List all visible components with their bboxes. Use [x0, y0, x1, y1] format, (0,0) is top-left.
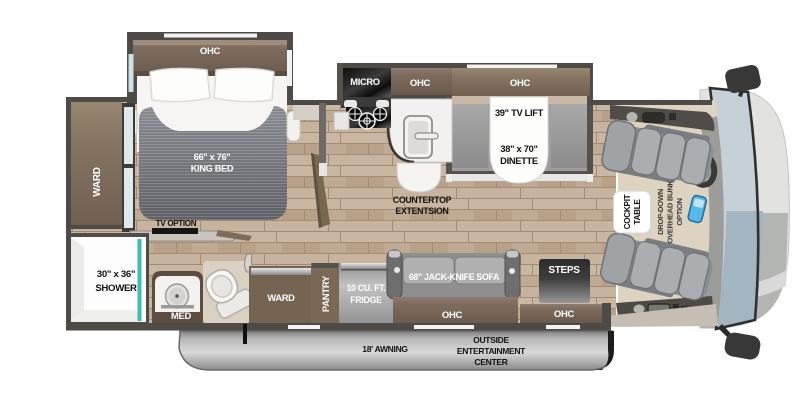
svg-text:30" x 36": 30" x 36" — [97, 269, 135, 280]
svg-text:PANTRY: PANTRY — [321, 275, 332, 312]
svg-text:KING BED: KING BED — [191, 164, 234, 174]
svg-text:MED: MED — [171, 311, 192, 322]
svg-text:TV OPTION: TV OPTION — [156, 219, 197, 228]
svg-text:OHC: OHC — [200, 46, 221, 57]
svg-text:OHC: OHC — [410, 78, 431, 89]
svg-text:18' AWNING: 18' AWNING — [362, 344, 408, 354]
svg-text:DROP-DOWN: DROP-DOWN — [656, 189, 665, 235]
svg-text:38" x 70": 38" x 70" — [500, 144, 537, 154]
svg-text:10 CU. FT.: 10 CU. FT. — [346, 283, 385, 293]
svg-text:EXTENTSION: EXTENTSION — [395, 206, 448, 216]
svg-text:DINETTE: DINETTE — [500, 156, 538, 166]
svg-text:CENTER: CENTER — [474, 357, 507, 367]
svg-text:MICRO: MICRO — [350, 77, 380, 87]
svg-text:FRIDGE: FRIDGE — [350, 295, 382, 305]
svg-text:ENTERTAINMENT: ENTERTAINMENT — [457, 346, 526, 356]
svg-text:OHC: OHC — [554, 309, 575, 320]
svg-text:OVERHEAD BUNK: OVERHEAD BUNK — [666, 180, 675, 244]
svg-text:39" TV LIFT: 39" TV LIFT — [495, 108, 544, 118]
svg-text:WARD: WARD — [267, 293, 295, 303]
svg-text:SHOWER: SHOWER — [95, 283, 137, 294]
svg-text:OUTSIDE: OUTSIDE — [473, 335, 509, 345]
svg-text:STEPS: STEPS — [548, 265, 580, 276]
svg-text:OHC: OHC — [442, 310, 463, 321]
svg-text:66" x 76": 66" x 76" — [194, 152, 231, 162]
svg-text:COCKPIT: COCKPIT — [623, 194, 632, 229]
svg-text:TABLE: TABLE — [633, 199, 642, 225]
svg-text:68" JACK-KNIFE SOFA: 68" JACK-KNIFE SOFA — [409, 272, 500, 282]
svg-text:OPTION: OPTION — [675, 198, 684, 225]
svg-text:WARD: WARD — [92, 167, 103, 196]
svg-text:COUNTERTOP: COUNTERTOP — [393, 195, 452, 205]
svg-text:OHC: OHC — [510, 78, 531, 89]
